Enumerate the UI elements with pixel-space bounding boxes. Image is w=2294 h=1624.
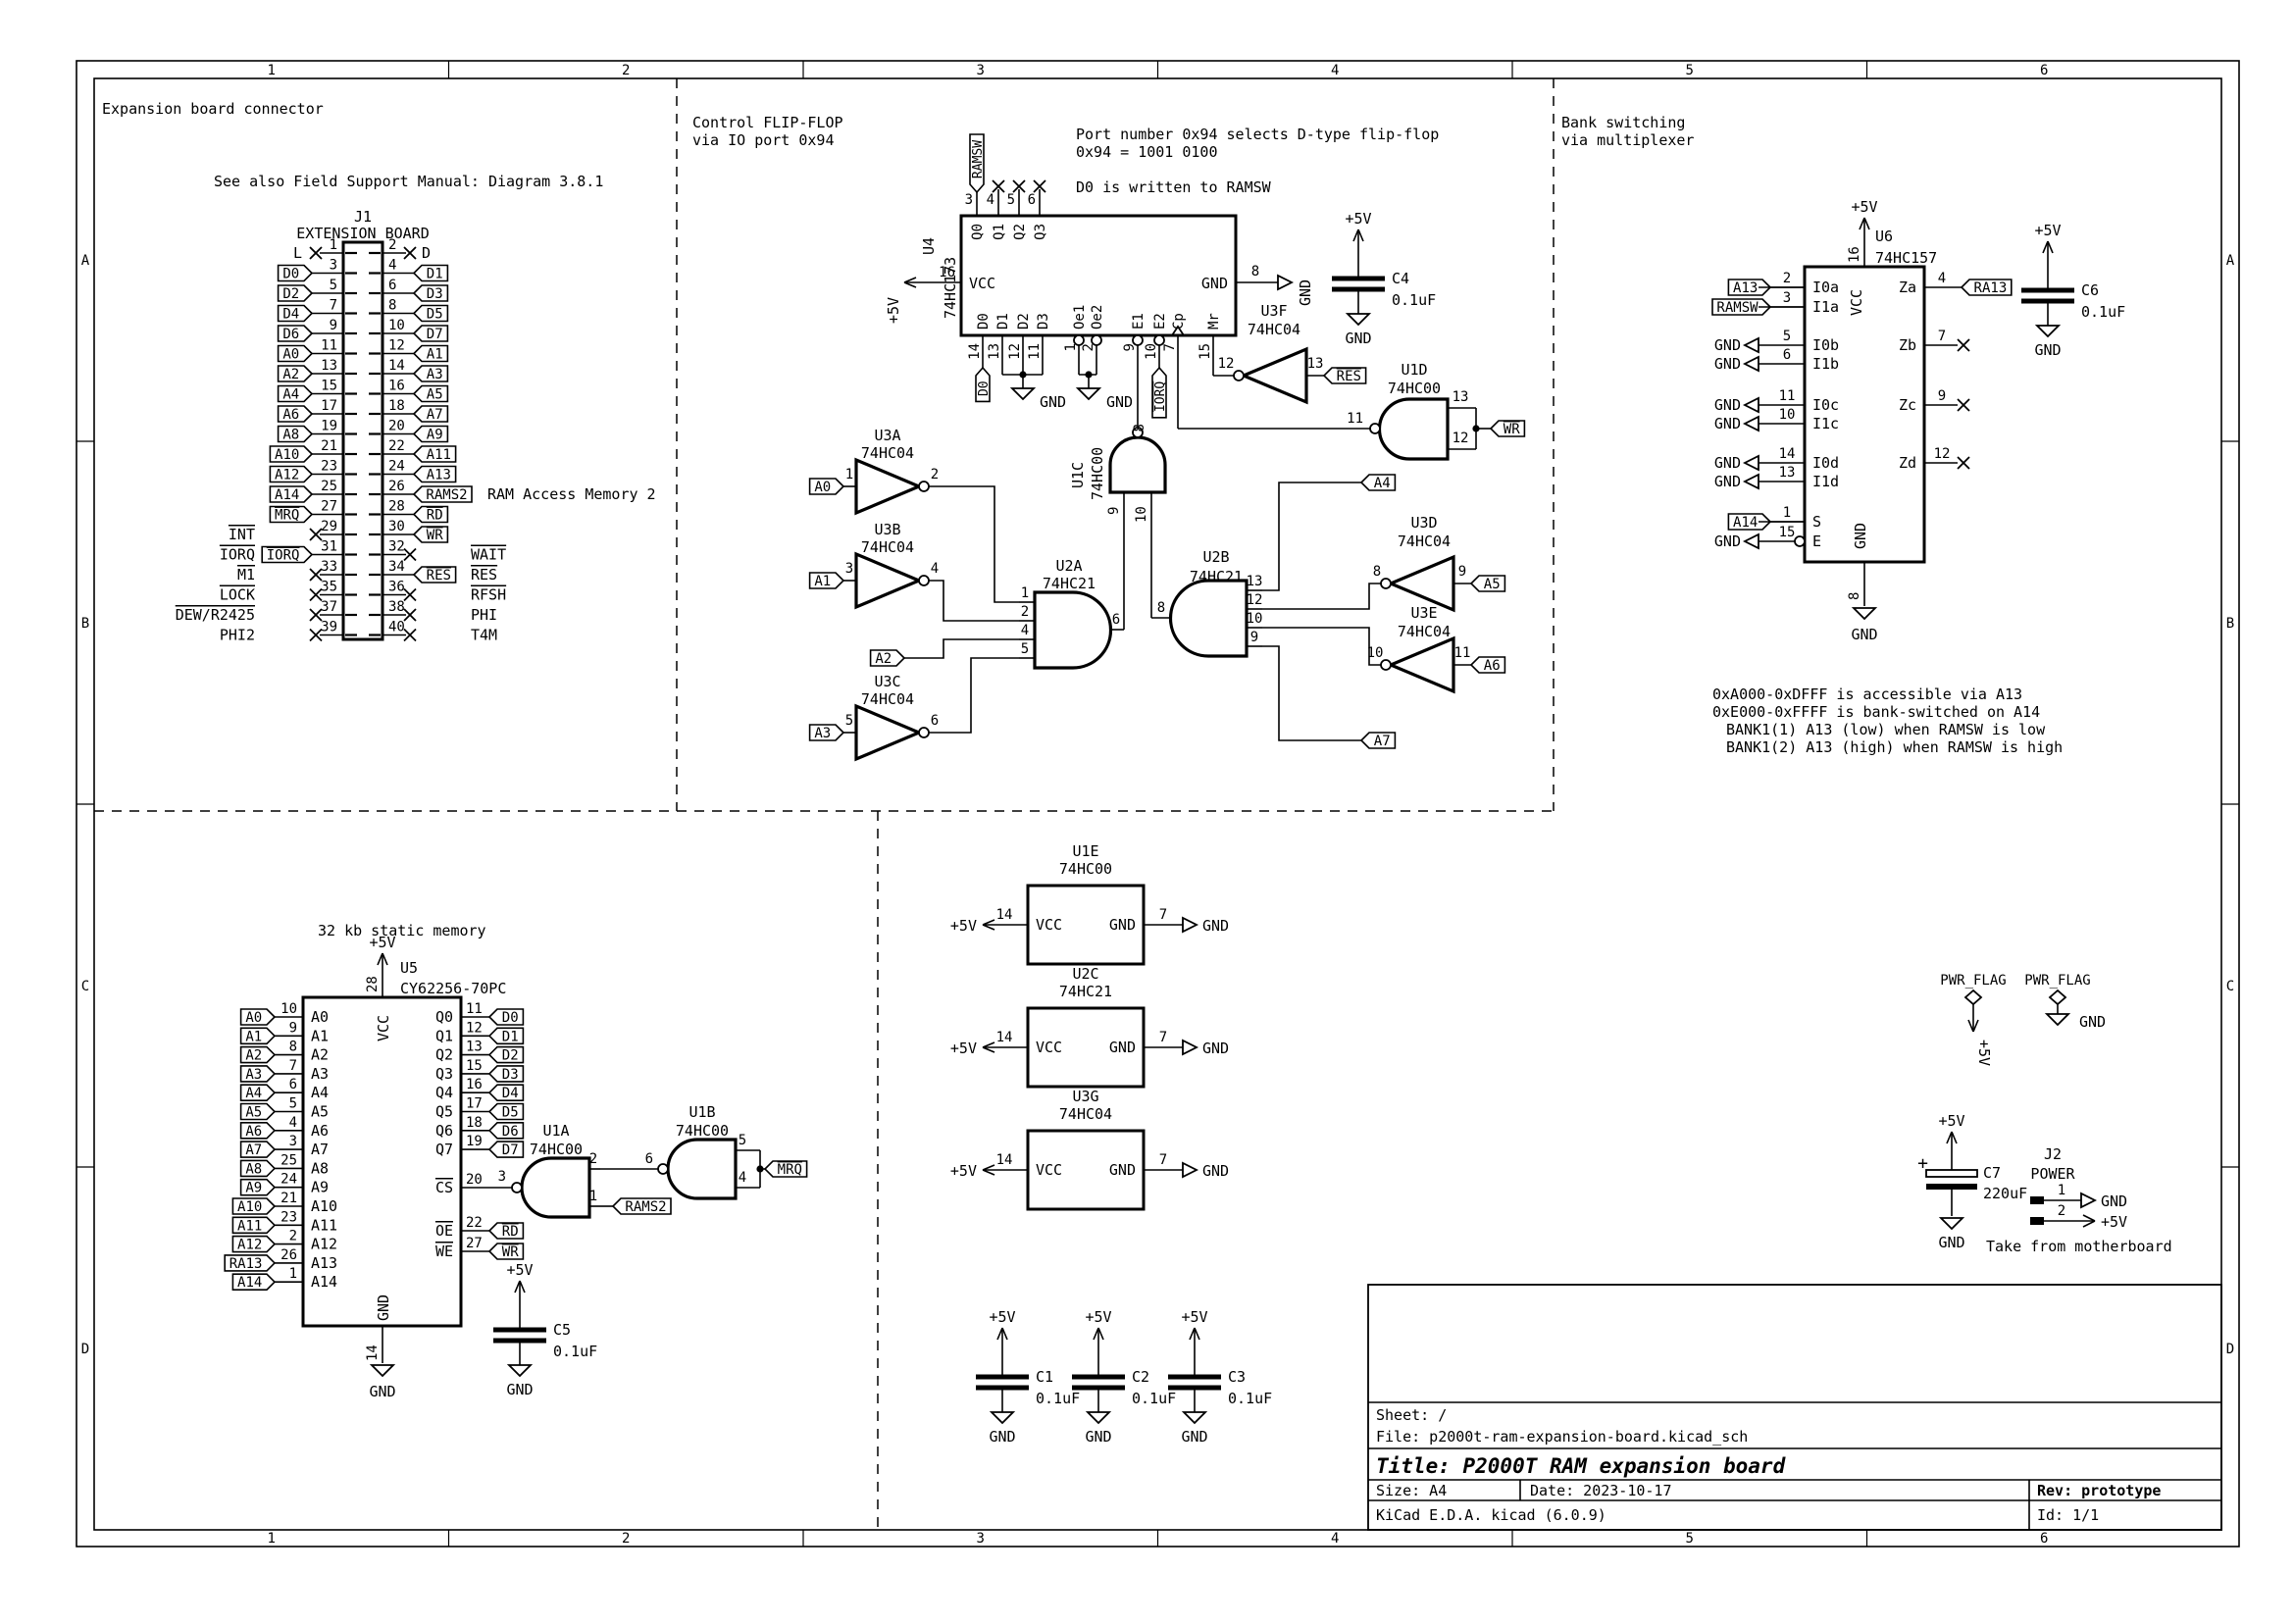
pin-number: 11 [1779,388,1796,404]
component-value: 74HC04 [1059,1105,1112,1123]
power-net-label: +5V [1851,198,1877,216]
net-tag-label[interactable]: A8 [282,428,299,443]
pin-name: GND [1109,1161,1136,1179]
pin-number: 26 [280,1247,297,1263]
pin-number: 1 [589,1189,597,1204]
net-tag-label[interactable]: A6 [245,1124,262,1140]
power-net-label: GND [1345,330,1371,347]
pin-number: 4 [289,1115,297,1131]
connector-body [343,242,382,639]
net-tag-label[interactable]: A11 [237,1218,262,1234]
net-tag-label[interactable]: D5 [427,307,443,323]
pin-number: 2 [1021,604,1029,620]
pin-number: 14 [365,1345,381,1361]
net-tag-label[interactable]: RD [502,1224,519,1240]
net-tag-label[interactable]: D0 [977,381,992,396]
net-tag-label[interactable]: D1 [502,1029,519,1044]
net-tag-label[interactable]: RAMS2 [426,487,467,503]
pin-number: 2 [2058,1203,2065,1219]
component-value: 74HC04 [861,444,914,462]
signal-name: INT [229,526,255,543]
pin-number: 8 [1251,264,1259,279]
gnd-symbol [1184,1412,1205,1423]
inversion-bubble [512,1183,522,1193]
border-col-label: 1 [268,1531,276,1547]
component-ref: C5 [553,1321,571,1339]
pin-number: 11 [1454,645,1471,661]
power-net-label: GND [1714,415,1741,432]
wire [929,581,1019,621]
net-tag-label[interactable]: A0 [282,347,299,363]
pin-number: 8 [388,298,396,314]
net-tag-label[interactable]: A4 [282,387,299,403]
pin-number: 9 [289,1020,297,1036]
pin-number: 39 [321,620,337,635]
power-input-section[interactable]: PWR_FLAG+5VPWR_FLAGGND+5V+C7220uFGNDJ2PO… [1917,973,2172,1255]
net-tag-label[interactable]: D6 [502,1124,519,1140]
pin-number: 4 [1938,271,1946,286]
pin-name: WE [435,1243,453,1260]
pin-name: D [422,244,431,262]
net-tag-label[interactable]: A0 [814,480,831,495]
pin-name: A2 [311,1046,329,1064]
pin-number: 5 [1007,192,1015,208]
title-block-size: Size: A4 [1376,1482,1447,1499]
net-tag-label[interactable]: A13 [427,468,451,483]
net-tag-label[interactable]: A5 [427,387,443,403]
net-tag-label[interactable]: D1 [427,267,443,282]
pin-number: 12 [1453,431,1469,446]
pin-number: 35 [321,580,337,595]
component-value: 0.1uF [1228,1390,1272,1407]
pin-name: OE [435,1222,453,1240]
net-tag-label[interactable]: D5 [502,1105,519,1121]
component-ref: U3G [1072,1088,1098,1105]
section-heading: Control FLIP-FLOP [692,114,843,131]
annotation: BANK1(2) A13 (high) when RAMSW is high [1726,738,2063,756]
net-tag-label[interactable]: RA13 [1974,280,2008,296]
net-tag-label[interactable]: RES [1337,369,1361,384]
signal-name: RFSH [471,586,506,604]
net-tag-label[interactable]: A7 [1374,734,1391,749]
border-row-label: A [81,253,90,269]
pin-number: 23 [321,459,337,475]
component-ref: U3E [1410,604,1437,622]
net-tag-label[interactable]: MRQ [778,1162,802,1178]
border-col-label: 4 [1331,63,1339,78]
net-tag-label[interactable]: A13 [1733,280,1758,296]
gnd-symbol [1745,357,1759,371]
pin-number: 9 [1938,388,1946,404]
component-value: 74HC00 [1388,380,1441,397]
signal-name: PHI [471,606,497,624]
pin-number: 30 [388,519,405,534]
net-tag-label[interactable]: RAMSW [1716,300,1759,316]
component-value: 0.1uF [1392,291,1436,309]
pin-number: 3 [330,258,337,274]
net-tag-label[interactable]: A0 [245,1010,262,1026]
pin-name: VCC [1848,289,1865,316]
net-tag-label[interactable]: D3 [427,286,443,302]
net-tag-label[interactable]: A12 [237,1238,262,1253]
annotation: 0xE000-0xFFFF is bank-switched on A14 [1712,703,2040,721]
pin-number: 15 [1779,525,1796,540]
power-net-label: GND [1714,533,1741,550]
pin-name: Mr [1206,313,1222,330]
net-tag-label[interactable]: A9 [245,1181,262,1196]
pin-number: 12 [466,1020,483,1036]
pin-number: 5 [739,1133,746,1148]
component-value: EXTENSION BOARD [296,225,429,242]
wire [1262,646,1361,740]
pin-pad [2030,1196,2044,1204]
power-net-label: GND [369,1383,395,1400]
pin-number: 7 [330,298,337,314]
pin-number: 7 [1159,907,1167,923]
net-tag-label[interactable]: D4 [502,1086,519,1101]
pin-name: GND [375,1294,392,1321]
power-net-label: GND [2079,1013,2106,1031]
component-ref: U5 [400,959,418,977]
component-value: 74HC04 [1398,623,1451,640]
pin-pad [2030,1217,2044,1225]
pin-number: 7 [1938,329,1946,344]
component-value: CY62256-70PC [400,980,506,997]
component-value: 74HC21 [1190,568,1243,585]
gnd-symbol [509,1365,531,1376]
pin-number: 33 [321,559,337,575]
signal-name: T4M [471,627,497,644]
pin-name: VCC [1036,1039,1062,1056]
inversion-bubble [1795,536,1805,546]
net-tag-label[interactable]: A6 [282,407,299,423]
pin-name: Q3 [435,1065,453,1083]
power-net-label: GND [1938,1234,1964,1251]
title-block-tool: KiCad E.D.A. kicad (6.0.9) [1376,1506,1606,1524]
pin-number: 19 [466,1134,483,1149]
pin-number: 11 [1347,411,1363,427]
component-value: 0.1uF [1132,1390,1176,1407]
pin-number: 12 [1218,356,1235,372]
pin-name: D3 [1036,313,1051,330]
power-net-label: GND [1106,393,1133,411]
net-tag-label[interactable]: A14 [1733,515,1758,531]
pin-number: 25 [280,1152,297,1168]
power-net-label: GND [1181,1428,1207,1446]
pin-name: Q2 [1012,224,1028,240]
pin-name: Oe1 [1072,305,1088,330]
gate-body [668,1140,736,1198]
net-tag-label[interactable]: A10 [237,1199,262,1215]
gate-body [522,1158,589,1217]
signal-name: IORQ [220,546,255,564]
pin-number: 38 [388,599,405,615]
net-tag-label[interactable]: A3 [245,1067,262,1083]
gnd-symbol [2081,1193,2095,1207]
inversion-bubble [1234,371,1244,381]
pin-name: I1d [1812,473,1839,490]
pin-number: 11 [466,1001,483,1017]
pin-name: D0 [976,313,992,330]
pin-name: L [293,244,302,262]
net-tag-label[interactable]: A1 [427,347,443,363]
pin-number: 24 [280,1172,297,1188]
border-row-label: C [2226,979,2234,994]
pin-number: 5 [1021,641,1029,657]
kicad-schematic-page: 112233445566AABBCCDDExpansion board conn… [0,0,2294,1624]
net-tag-label[interactable]: A14 [275,487,299,503]
net-tag-label[interactable]: D2 [502,1048,519,1064]
pin-name: I0b [1812,336,1839,354]
net-tag-label[interactable]: D0 [502,1010,519,1026]
net-tag-label[interactable]: A4 [245,1086,262,1101]
pin-number: 5 [330,278,337,293]
net-tag-label[interactable]: D0 [282,267,299,282]
pin-number: 4 [931,561,939,577]
pin-name: CS [435,1179,453,1196]
pin-number: 6 [645,1151,653,1167]
power-net-label: GND [506,1381,533,1398]
pin-number: 16 [466,1077,483,1092]
pin-number: 10 [1247,611,1263,627]
pin-number: 1 [289,1266,297,1282]
net-tag-label[interactable]: RD [427,508,443,524]
border-row-label: C [81,979,89,994]
pin-number: 2 [1783,271,1791,286]
net-tag-label[interactable]: RAMS2 [625,1199,666,1215]
pin-number: 1 [1783,505,1791,521]
signal-name: PHI2 [220,627,255,644]
net-tag-label[interactable]: D4 [282,307,299,323]
net-tag-label[interactable]: D7 [427,327,443,342]
pin-number: 4 [739,1170,746,1186]
net-tag-label[interactable]: D3 [502,1067,519,1083]
bank-section[interactable]: Bank switchingvia multiplexerU674HC157+5… [1561,114,2063,756]
net-tag-label[interactable]: A1 [245,1029,262,1044]
power-net-label: +5V [989,1308,1015,1326]
pin-number: 13 [321,358,337,374]
net-tag-label[interactable]: A5 [1484,577,1501,592]
inversion-bubble [919,482,929,491]
net-tag-label[interactable]: A1 [814,574,831,589]
pin-number: 4 [1021,623,1029,638]
power-net-label: +5V [2034,222,2061,239]
net-tag-label[interactable]: A8 [245,1161,262,1177]
cap-plate [1926,1170,1977,1177]
net-tag-label[interactable]: A3 [427,367,443,382]
power-net-label: +5V [369,934,395,951]
pin-number: 8 [289,1040,297,1055]
annotation: RAM Access Memory 2 [487,485,656,503]
pin-number: 27 [466,1236,483,1251]
net-tag-label[interactable]: A2 [282,367,299,382]
signal-name: WAIT [471,546,506,564]
inversion-bubble [919,576,929,585]
inversion-bubble [1381,579,1391,588]
pin-number: 28 [388,499,405,515]
net-tag-label[interactable]: WR [502,1244,519,1260]
gnd-symbol [1745,475,1759,488]
pin-number: 14 [996,907,1013,923]
net-tag-label[interactable]: IORQ [1153,381,1168,412]
pin-name: GND [1109,916,1136,934]
section-heading: Expansion board connector [102,100,324,118]
inversion-bubble [1092,335,1101,345]
gnd-symbol [1012,388,1034,399]
pin-number: 21 [280,1191,297,1206]
net-tag-label[interactable]: A3 [814,726,831,741]
arrow-right-icon [2083,1215,2095,1221]
power-net-label: +5V [885,297,902,324]
annotation: BANK1(1) A13 (low) when RAMSW is low [1726,721,2046,738]
net-tag-label[interactable]: MRQ [275,508,299,524]
border-col-label: 1 [268,63,276,78]
pin-number: 16 [939,265,955,280]
border-col-label: 3 [977,1531,985,1547]
inversion-bubble [919,728,929,737]
pin-number: 3 [498,1169,506,1185]
component-ref: U1A [542,1122,569,1140]
pin-number: 29 [321,519,337,534]
title-block-date: Date: 2023-10-17 [1530,1482,1672,1499]
pin-number: 3 [1783,290,1791,306]
pin-number: 10 [388,318,405,333]
pin-number: 10 [1144,343,1159,360]
component-ref: U1D [1401,361,1427,379]
flipflop-section[interactable]: Control FLIP-FLOPvia IO port 0x94Port nu… [692,114,1524,759]
pin-name: Zc [1899,396,1916,414]
net-tag-label[interactable]: A5 [245,1105,262,1121]
pin-number: 7 [1162,343,1178,351]
component-value: 74HC04 [861,538,914,556]
pin-number: 2 [388,237,396,253]
pin-number: 15 [466,1058,483,1074]
net-tag-label[interactable]: A2 [245,1048,262,1064]
component-value: 74HC00 [1089,447,1106,500]
net-tag-label[interactable]: RA13 [229,1256,263,1272]
pin-number: 6 [1112,612,1120,628]
component-value: 74HC04 [1398,533,1451,550]
pin-name: Q2 [435,1046,453,1064]
gnd-symbol [2037,326,2059,336]
pin-number: 9 [1250,630,1258,645]
net-tag-label[interactable]: RES [427,568,451,584]
gnd-symbol [1348,314,1369,325]
title-block: Sheet: /File: p2000t-ram-expansion-board… [1368,1285,2221,1530]
power-net-label: +5V [1938,1112,1964,1130]
power-net-label: +5V [1345,210,1371,228]
net-tag-label[interactable]: A7 [427,407,443,423]
net-tag-label[interactable]: WR [427,528,443,543]
pin-name: A0 [311,1008,329,1026]
net-tag-label[interactable]: D7 [502,1142,519,1158]
annotation: 0x94 = 1001 0100 [1076,143,1218,161]
power-net-label: GND [1714,454,1741,472]
net-tag-label[interactable]: A11 [427,447,451,463]
component-value: 220uF [1983,1185,2027,1202]
net-tag-label[interactable]: A2 [875,651,892,667]
pin-name: VCC [1036,1161,1062,1179]
pin-number: 3 [289,1134,297,1149]
pin-name: A1 [311,1027,329,1044]
net-tag-label[interactable]: A6 [1484,658,1501,674]
schematic-canvas[interactable]: 112233445566AABBCCDDExpansion board conn… [0,0,2294,1624]
net-tag-label[interactable]: A12 [275,468,299,483]
power-net-label: +5V [1085,1308,1111,1326]
section-note: See also Field Support Manual: Diagram 3… [214,173,603,190]
border-col-label: 6 [2040,63,2048,78]
pin-number: 14 [996,1030,1013,1045]
net-tag-label[interactable]: IORQ [267,548,300,564]
power-net-label: +5V [950,1162,977,1180]
border-col-label: 6 [2040,1531,2048,1547]
pin-number: 5 [1783,329,1791,344]
gate-body [1171,581,1248,656]
gnd-symbol [1183,1163,1197,1177]
net-tag-label[interactable]: D2 [282,286,299,302]
power-net-label: +5V [950,917,977,935]
net-tag-label[interactable]: A9 [427,428,443,443]
net-tag-label[interactable]: RAMSW [971,140,986,178]
bypass-caps[interactable]: +5VC10.1uFGND+5VC20.1uFGND+5VC30.1uFGND+… [493,210,2125,1446]
pin-name: A14 [311,1273,337,1291]
section-heading: Bank switching [1561,114,1685,131]
pin-name: D1 [995,313,1011,330]
net-tag-label[interactable]: A14 [237,1275,262,1291]
pin-name: A11 [311,1216,337,1234]
section-dividers [94,78,1554,1530]
pin-name: Q1 [992,224,1007,240]
pin-name: E2 [1152,313,1168,330]
power-units[interactable]: U1E74HC00VCCGND+5V147GNDU2C74HC21VCCGND+… [950,842,1229,1209]
net-tag-label[interactable]: D6 [282,327,299,342]
pin-name: VCC [969,275,995,292]
net-tag-label[interactable]: A10 [275,447,299,463]
power-net-label: GND [2034,341,2061,359]
net-tag-label[interactable]: WR [1504,422,1520,437]
pin-number: 14 [1779,446,1796,462]
pin-name: A6 [311,1122,329,1140]
pin-number: 40 [388,620,405,635]
pin-number: 28 [365,976,381,992]
pwr-flag-label: PWR_FLAG [1940,973,2006,989]
component-ref: C4 [1392,270,1409,287]
pin-name: Zd [1899,454,1916,472]
component-ref: U2B [1202,548,1229,566]
component-ref: U2C [1072,965,1098,983]
pin-number: 5 [845,713,853,729]
wire [904,639,1019,658]
net-tag-label[interactable]: A4 [1374,476,1391,491]
pin-number: 31 [321,539,337,555]
border-row-label: D [81,1342,89,1357]
component-value: 0.1uF [2081,303,2125,321]
power-net-label: GND [1714,355,1741,373]
pin-number: 18 [388,398,405,414]
net-tag-label[interactable]: A7 [245,1142,262,1158]
connector-j1[interactable]: Expansion board connectorSee also Field … [102,100,656,644]
inverter-body [856,554,919,607]
gnd-symbol [2047,1014,2068,1025]
power-net-label: +5V [950,1040,977,1057]
pin-number: 22 [466,1215,483,1231]
border-col-label: 2 [622,63,630,78]
pwr-flag-icon [1965,990,1981,1004]
power-net-label: GND [1297,279,1314,306]
pin-number: 26 [388,479,405,494]
border-row-label: D [2226,1342,2234,1357]
pin-name: A10 [311,1197,337,1215]
